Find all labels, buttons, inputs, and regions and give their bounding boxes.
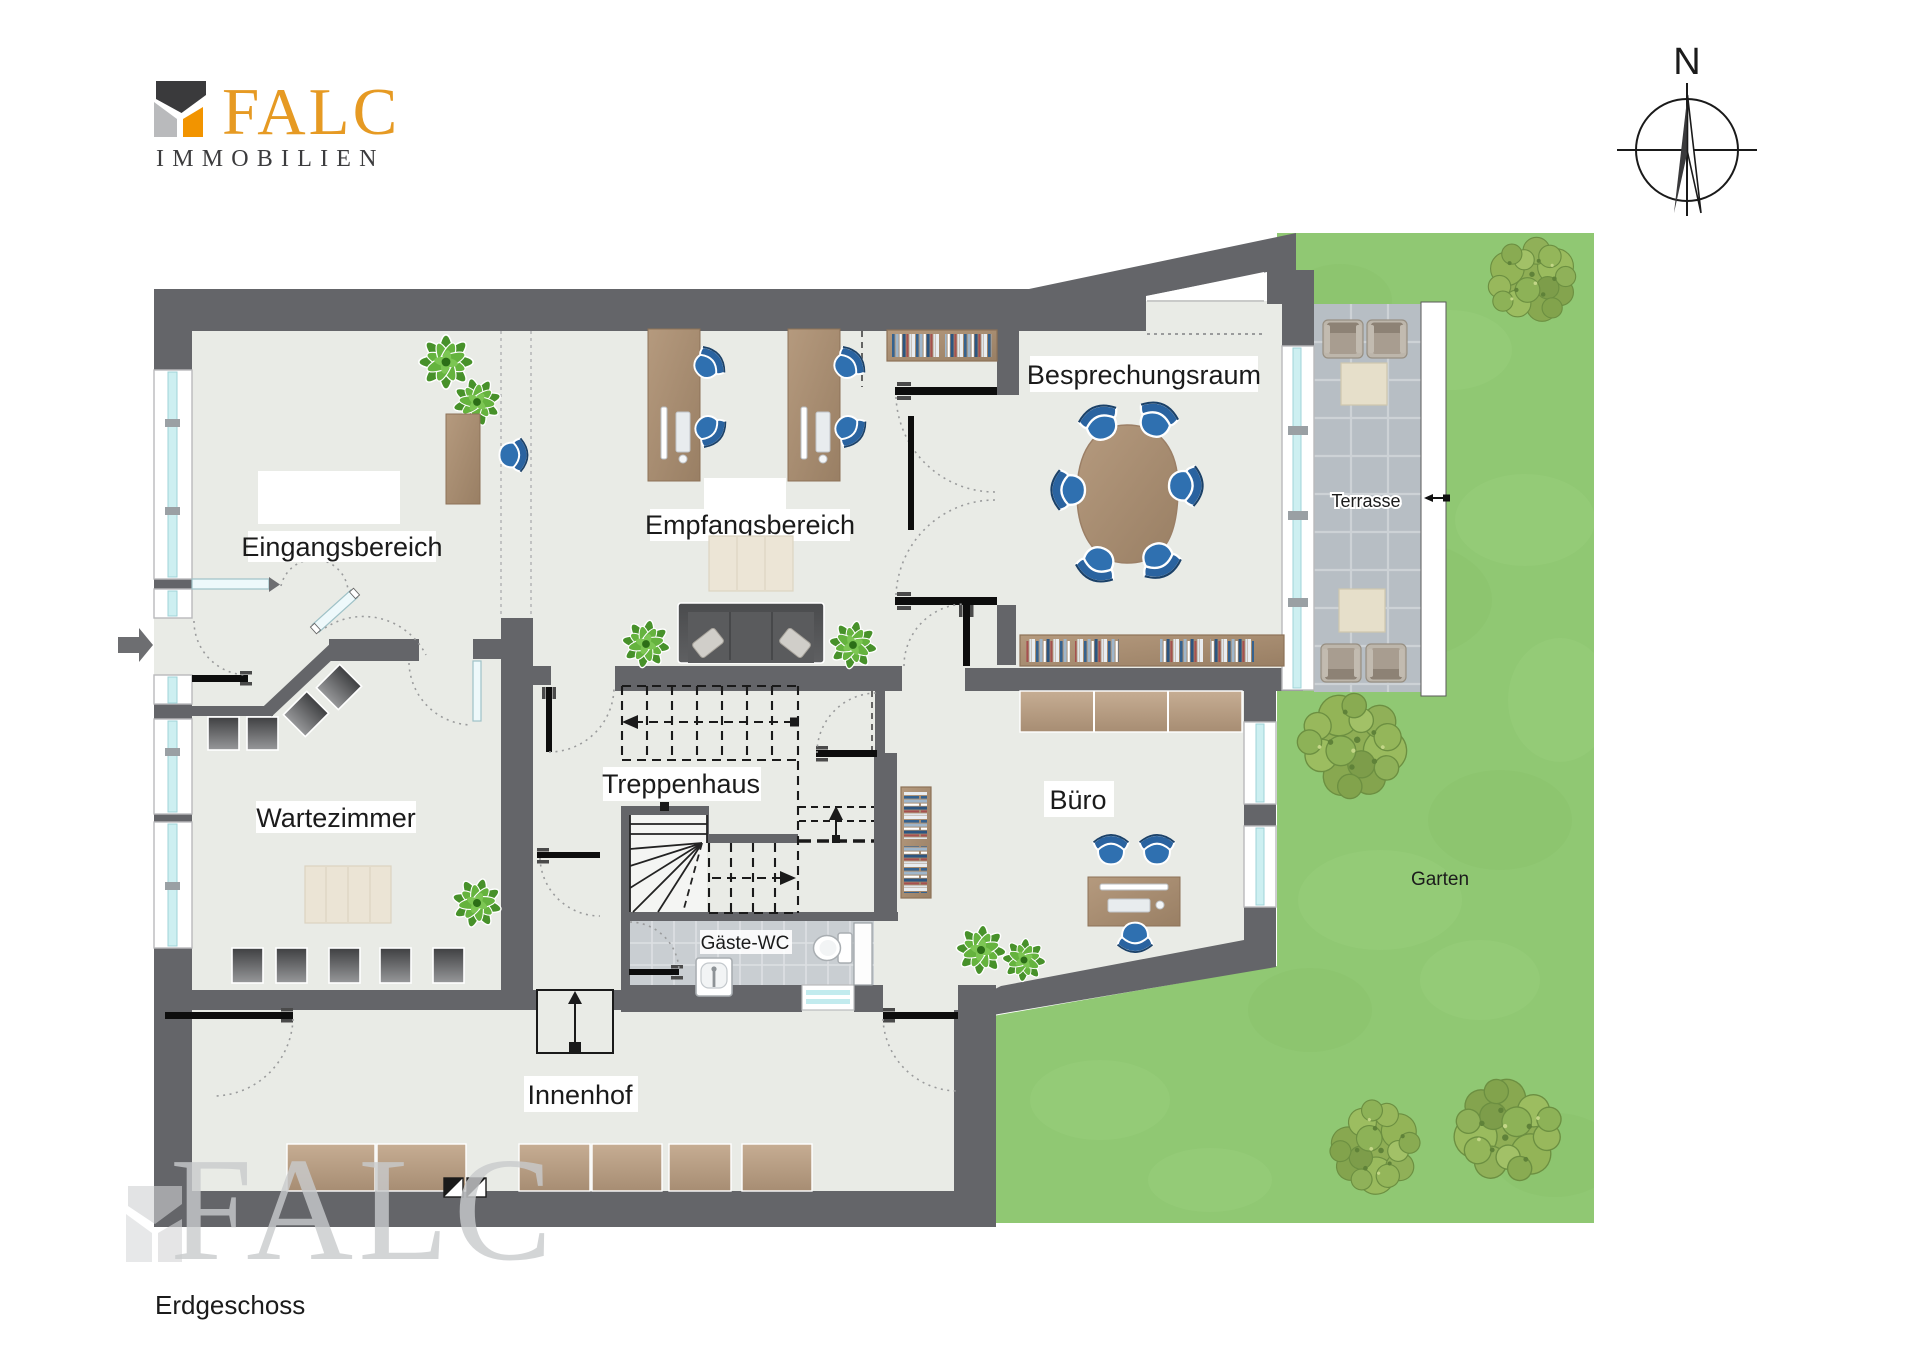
svg-text:IMMOBILIEN: IMMOBILIEN: [156, 146, 385, 172]
svg-text:Gäste-WC: Gäste-WC: [701, 933, 790, 954]
svg-text:Büro: Büro: [1049, 785, 1106, 815]
svg-text:Eingangsbereich: Eingangsbereich: [241, 532, 442, 562]
svg-text:N: N: [1673, 41, 1700, 83]
svg-text:FALC: FALC: [222, 75, 400, 149]
svg-text:Wartezimmer: Wartezimmer: [256, 803, 416, 833]
svg-text:FALC: FALC: [170, 1128, 557, 1292]
svg-text:Terrasse: Terrasse: [1331, 491, 1400, 511]
svg-text:Erdgeschoss: Erdgeschoss: [155, 1290, 305, 1320]
svg-text:Besprechungsraum: Besprechungsraum: [1027, 360, 1261, 390]
svg-text:Garten: Garten: [1411, 869, 1469, 890]
svg-text:Treppenhaus: Treppenhaus: [602, 769, 760, 799]
svg-text:Innenhof: Innenhof: [527, 1080, 633, 1110]
